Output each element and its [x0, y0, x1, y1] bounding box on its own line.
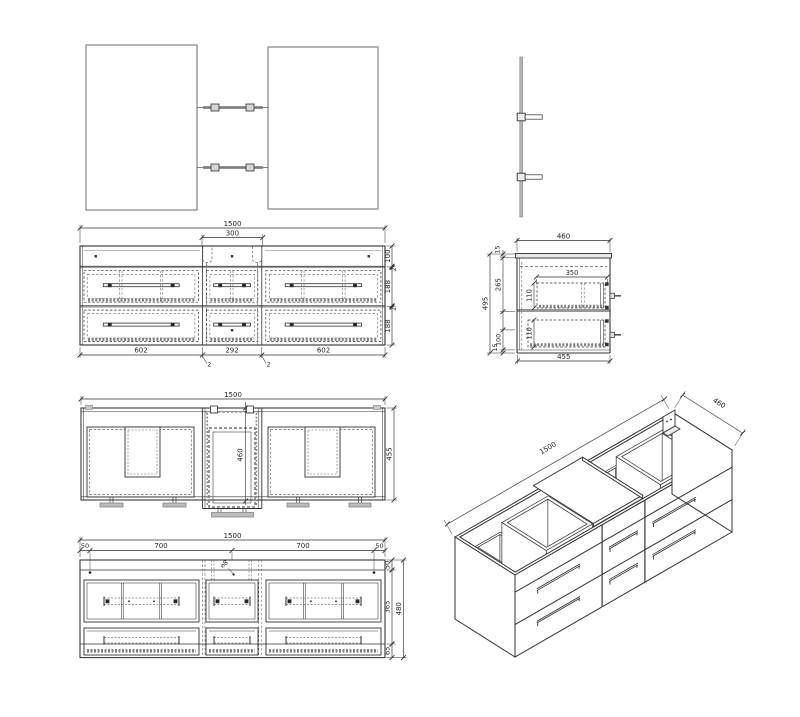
hole-mark [310, 600, 312, 602]
connector-block [211, 164, 219, 171]
dim-label: 188 [384, 319, 392, 332]
wall-bracket [374, 405, 381, 409]
dim-label: 2 [267, 361, 271, 369]
mirror-panel-left [86, 45, 197, 210]
dim-label: 455 [385, 447, 393, 460]
dim-label: 110 [525, 289, 533, 302]
dim-label: 365 [384, 601, 392, 614]
fix-mark [216, 600, 219, 603]
dim-label: 292 [225, 347, 238, 355]
dim-label: 188 [384, 280, 392, 293]
dim-label: 50 [375, 542, 383, 550]
handle-knob [610, 332, 615, 337]
center-mark [95, 256, 97, 258]
fix-mark [356, 600, 359, 603]
hole-mark [128, 600, 130, 602]
slide-mark [606, 343, 609, 346]
connector-block [246, 164, 254, 171]
handle-screw [290, 323, 293, 326]
hole-mark [666, 421, 668, 423]
slide-mark [606, 306, 609, 309]
dim-label: 350 [566, 269, 579, 277]
dim-label: 300 [226, 230, 239, 238]
handle-screw [171, 323, 174, 326]
handle-screw [290, 284, 293, 287]
dim-label: 455 [557, 353, 570, 361]
cad-drawing: 15003001002188218860229260222 4603501101… [0, 0, 800, 717]
bracket-block [517, 173, 525, 181]
dim-label: 460 [557, 233, 570, 241]
dim-label: 460 [237, 448, 245, 461]
dim-label: 602 [134, 347, 147, 355]
center-mark [231, 330, 233, 332]
connector-block [211, 104, 219, 111]
dim-label: 1500 [224, 532, 242, 540]
foot-plate [349, 503, 371, 507]
dim-label: 50 [81, 542, 89, 550]
fix-mark [174, 600, 177, 603]
fix-mark [288, 600, 291, 603]
dim-label: 15 [491, 343, 499, 351]
wall-bracket [86, 405, 93, 409]
dim-label: 110 [525, 327, 533, 340]
bracket-arm [525, 175, 542, 179]
dim-label: 1500 [224, 220, 242, 228]
dim-label: 700 [154, 542, 167, 550]
drawer-handle [285, 323, 361, 326]
drawer-handle [103, 284, 179, 287]
countertop-slab [516, 254, 612, 259]
dim-label: 700 [296, 542, 309, 550]
foot-plate [287, 503, 309, 507]
handle-screw [219, 323, 222, 326]
center-mark [368, 256, 370, 258]
connector-block [246, 104, 254, 111]
handle-screw [243, 284, 246, 287]
basin-notch [125, 427, 160, 477]
dim-label: 480 [395, 602, 403, 615]
dim-label: 100 [384, 249, 392, 262]
drawing-sheet: 15003001002188218860229260222 4603501101… [0, 0, 800, 717]
handle-screw [354, 284, 357, 287]
dim-label: 2 [207, 361, 211, 369]
dim-label: 65 [384, 647, 392, 655]
bracket-arm [525, 115, 542, 119]
handle-screw [108, 284, 111, 287]
center-mark [231, 256, 233, 258]
foot-plate [163, 503, 186, 507]
dim-label: 602 [317, 347, 330, 355]
slide-mark [606, 283, 609, 286]
hole-mark [373, 571, 376, 574]
drawer-handle [285, 284, 361, 287]
dim-label: 15 [494, 245, 502, 253]
fix-mark [106, 600, 109, 603]
basin-notch [305, 427, 340, 477]
handle-screw [108, 323, 111, 326]
dim-label: 265 [494, 278, 502, 291]
handle-screw [219, 284, 222, 287]
drawer-handle [103, 323, 179, 326]
handle-screw [354, 323, 357, 326]
dim-label: 50 [384, 561, 392, 569]
hole-mark [153, 600, 155, 602]
bracket-block [517, 113, 525, 121]
connector-bolt [247, 406, 254, 413]
hole-mark [670, 419, 672, 421]
hole-mark [335, 600, 337, 602]
fix-mark [245, 600, 248, 603]
handle-knob [610, 293, 615, 298]
dim-label: 495 [481, 297, 489, 310]
slide-mark [606, 320, 609, 323]
foot-plate [100, 503, 123, 507]
foot-plate [212, 513, 254, 518]
handle-screw [171, 284, 174, 287]
connector-bolt [211, 406, 218, 413]
handle-screw [243, 323, 246, 326]
hole-mark [89, 571, 92, 574]
mirror-panel-right [268, 47, 378, 209]
mirror-edge [520, 57, 523, 217]
dim-label: 1500 [224, 391, 242, 399]
